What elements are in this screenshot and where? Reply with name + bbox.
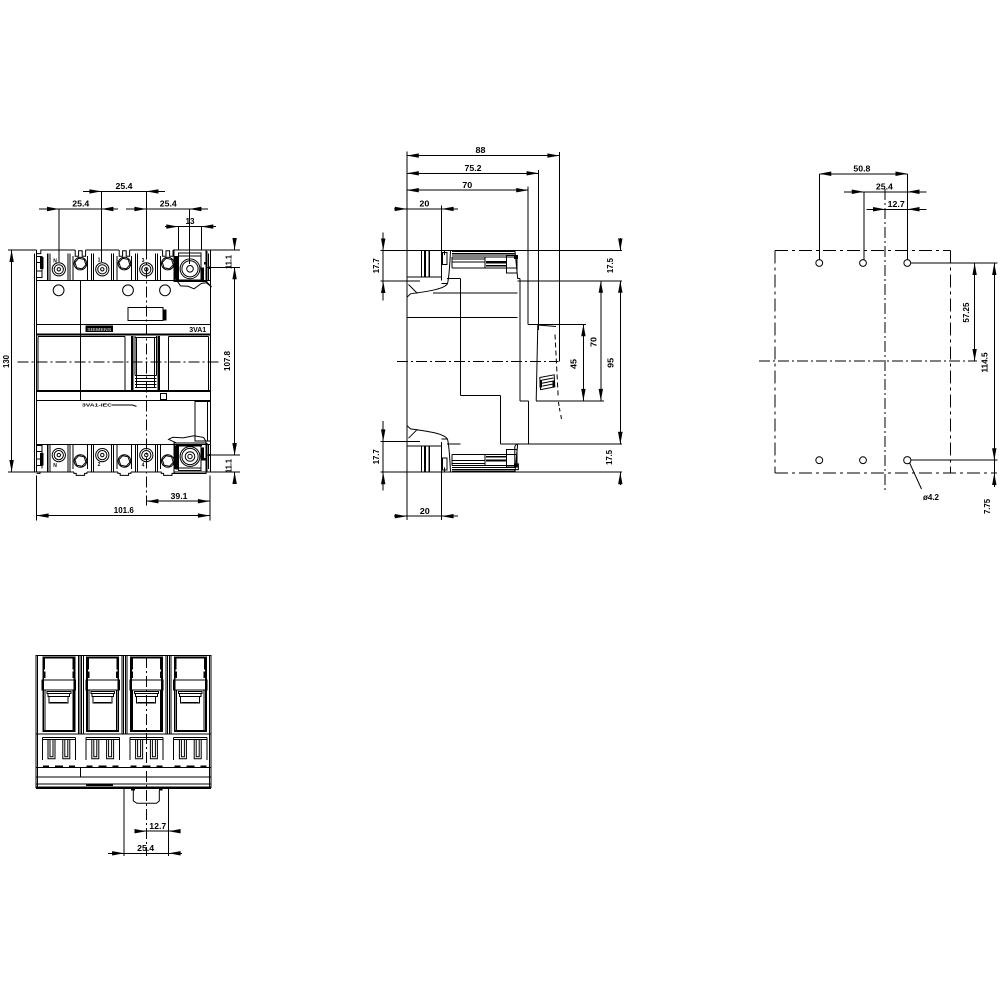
svg-text:17.5: 17.5 [606, 258, 615, 274]
svg-text:25.4: 25.4 [876, 182, 894, 191]
svg-text:70: 70 [590, 336, 599, 347]
svg-text:101.6: 101.6 [114, 506, 135, 515]
svg-text:12.7: 12.7 [149, 822, 167, 831]
svg-text:25.4: 25.4 [160, 200, 178, 209]
svg-text:12.7: 12.7 [888, 200, 906, 209]
svg-text:17.7: 17.7 [372, 258, 381, 274]
svg-text:3: 3 [142, 258, 145, 264]
svg-text:13: 13 [186, 217, 196, 226]
svg-text:95: 95 [607, 357, 616, 368]
svg-text:17.5: 17.5 [605, 449, 614, 465]
svg-text:2: 2 [98, 462, 101, 468]
svg-text:4: 4 [142, 463, 145, 469]
svg-text:130: 130 [2, 354, 11, 368]
svg-text:ø4.2: ø4.2 [923, 493, 940, 502]
svg-text:11.1: 11.1 [224, 255, 233, 269]
svg-text:57.25: 57.25 [962, 302, 971, 323]
svg-text:N: N [53, 463, 57, 469]
svg-text:107.8: 107.8 [223, 350, 232, 371]
svg-text:70: 70 [462, 181, 473, 190]
svg-text:20: 20 [420, 507, 431, 516]
svg-text:3VA1-IEC: 3VA1-IEC [82, 402, 113, 407]
svg-text:20: 20 [419, 200, 430, 209]
svg-text:39.1: 39.1 [171, 492, 189, 501]
svg-text:25.4: 25.4 [116, 182, 134, 191]
svg-text:25.4: 25.4 [72, 200, 90, 209]
svg-text:50.8: 50.8 [853, 164, 871, 173]
svg-text:88: 88 [476, 146, 487, 155]
svg-text:25.4: 25.4 [137, 844, 155, 853]
svg-text:17.7: 17.7 [372, 449, 381, 465]
svg-text:45: 45 [569, 358, 578, 369]
svg-text:SIEMENS: SIEMENS [87, 327, 111, 332]
svg-text:75.2: 75.2 [465, 164, 483, 173]
svg-text:7.75: 7.75 [983, 498, 992, 514]
svg-text:114.5: 114.5 [981, 352, 990, 373]
svg-text:11.1: 11.1 [224, 459, 233, 473]
svg-text:1: 1 [98, 257, 101, 263]
svg-text:3VA1: 3VA1 [189, 325, 206, 334]
svg-text:N: N [53, 258, 57, 264]
